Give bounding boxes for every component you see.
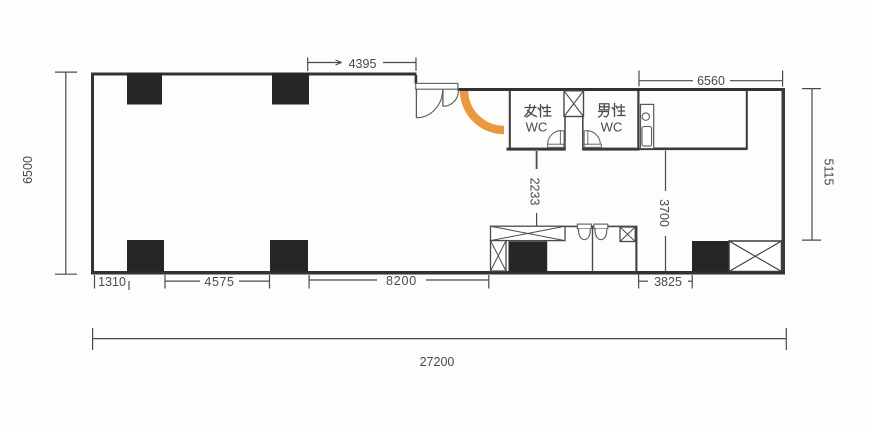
- svg-text:4575: 4575: [204, 275, 234, 289]
- svg-text:WC: WC: [526, 120, 548, 135]
- svg-text:WC: WC: [601, 120, 623, 135]
- svg-text:2233: 2233: [528, 178, 542, 206]
- svg-text:6560: 6560: [697, 74, 725, 88]
- svg-text:1310: 1310: [98, 275, 126, 289]
- svg-text:6500: 6500: [21, 156, 35, 184]
- svg-text:27200: 27200: [420, 355, 455, 369]
- svg-text:3700: 3700: [657, 199, 671, 227]
- svg-text:8200: 8200: [386, 274, 417, 288]
- svg-text:5115: 5115: [822, 159, 836, 186]
- svg-text:4395: 4395: [349, 57, 377, 71]
- svg-text:3825: 3825: [654, 275, 682, 289]
